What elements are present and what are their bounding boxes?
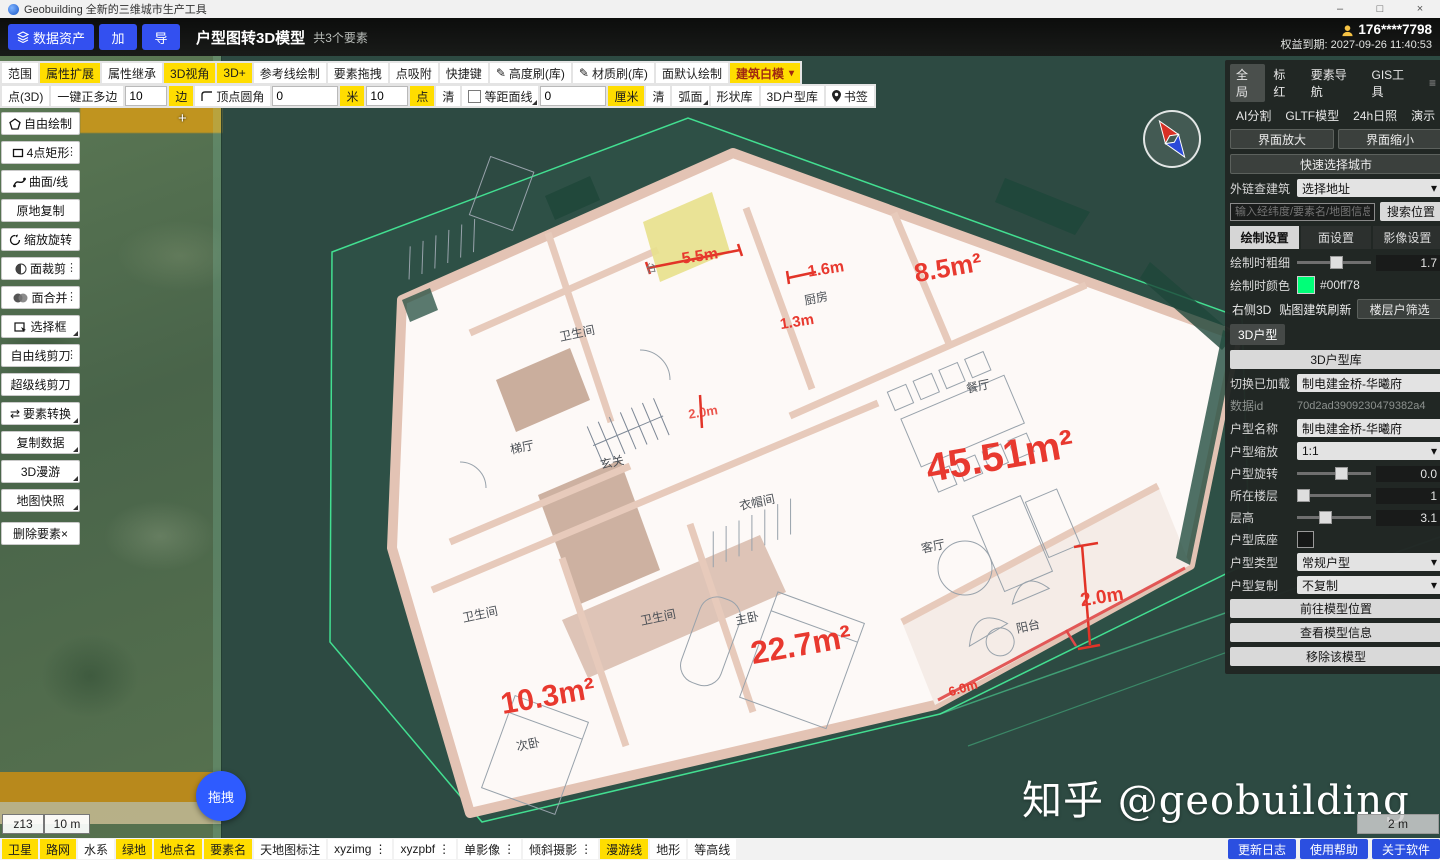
polygon-icon — [9, 118, 21, 130]
floor-height-slider[interactable] — [1297, 516, 1371, 519]
remove-model-button[interactable]: 移除该模型 — [1230, 647, 1440, 666]
data-id-label: 数据id — [1230, 397, 1292, 414]
floor-number-slider[interactable] — [1297, 494, 1371, 497]
toolbar-main: 范围 属性扩展 属性继承 3D视角 3D+ 参考线绘制 要素拖拽 点吸附 快捷键… — [0, 61, 802, 85]
house-rotate-value: 0.0 — [1376, 466, 1440, 482]
watermark: 知乎 @geobuilding — [1022, 768, 1410, 826]
add-button[interactable]: 加 — [99, 24, 137, 50]
floor-height-label: 层高 — [1230, 509, 1292, 526]
house-rotate-slider[interactable] — [1297, 472, 1371, 475]
tool-hotkeys[interactable]: 快捷键 — [440, 63, 488, 83]
tool-height-brush[interactable]: ✎高度刷(库) — [490, 63, 571, 83]
arc-surface-tool[interactable]: 弧面 — [672, 86, 708, 106]
layer-feature-names[interactable]: 要素名 — [204, 839, 252, 859]
right-3d-button[interactable]: 右侧3D — [1230, 300, 1273, 318]
floor-number-label: 所在楼层 — [1230, 487, 1292, 504]
goto-model-button[interactable]: 前往模型位置 — [1230, 599, 1440, 618]
chevron-down-icon: ▾ — [1431, 578, 1437, 592]
rectangle-icon — [12, 147, 24, 159]
clear-points-button[interactable]: 清 — [436, 86, 460, 106]
house-type-label: 户型类型 — [1230, 554, 1292, 571]
checkbox-icon — [468, 90, 481, 103]
corner-round-tool[interactable]: 顶点圆角 — [195, 86, 270, 106]
app-header: 数据资产 加 导 户型图转3D模型 共3个要素 176****7798 权益到期… — [0, 18, 1440, 56]
close-button[interactable]: × — [1400, 0, 1440, 18]
house-name-value[interactable]: 制电建金桥-华曦府 — [1297, 419, 1440, 437]
sides-unit[interactable]: 边 — [169, 86, 193, 106]
tool-regular-polygon[interactable]: 一键正多边 — [51, 86, 123, 106]
tool-feature-convert[interactable]: ⇄要素转换 — [1, 402, 80, 425]
tool-drag-feature[interactable]: 要素拖拽 — [328, 63, 388, 83]
search-input[interactable] — [1230, 203, 1375, 221]
compass[interactable] — [1143, 110, 1201, 168]
tab-sunlight[interactable]: 24h日照 — [1347, 105, 1403, 126]
layer-xyzpbf[interactable]: xyzpbf⋮ — [394, 839, 456, 859]
corner-icon — [201, 91, 213, 102]
tool-map-snapshot[interactable]: 地图快照 — [1, 489, 80, 512]
tool-refline[interactable]: 参考线绘制 — [254, 63, 326, 83]
tab-ai-split[interactable]: AI分割 — [1230, 105, 1277, 126]
tab-gis-tools[interactable]: GIS工具 — [1365, 64, 1421, 102]
app-window: + — [0, 0, 1440, 860]
equidistant-toggle[interactable]: 等距面线 — [462, 86, 538, 106]
map-scale-left: 10 m — [44, 814, 90, 834]
layer-water[interactable]: 水系 — [78, 839, 114, 859]
tool-attr-extend[interactable]: 属性扩展 — [40, 63, 100, 83]
more-icon: ⋮ — [66, 290, 77, 303]
map-scale-right: 2 m — [1357, 814, 1439, 834]
ext-building-label: 外链查建筑 — [1230, 180, 1292, 197]
chevron-down-icon: ▾ — [1431, 444, 1437, 458]
equidistant-input[interactable] — [540, 86, 606, 106]
tab-feature-nav[interactable]: 要素导航 — [1305, 64, 1364, 102]
tab-3d-house[interactable]: 3D户型 — [1230, 324, 1285, 345]
search-location-button[interactable]: 搜索位置 — [1380, 202, 1440, 221]
tool-copy-data[interactable]: 复制数据 — [1, 431, 80, 454]
stroke-width-label: 绘制时粗细 — [1230, 254, 1292, 271]
about-button[interactable]: 关于软件 — [1372, 839, 1440, 859]
tab-demo[interactable]: 演示 — [1405, 105, 1440, 126]
swap-arrows-icon: ⇄ — [10, 407, 20, 421]
floor-filter-button[interactable]: 楼层户筛选 — [1357, 299, 1440, 319]
layer-terrain[interactable]: 地形 — [650, 839, 686, 859]
tool-scale-rotate[interactable]: 缩放旋转 — [1, 228, 80, 251]
data-id-value: 70d2ad3909230479382a4 — [1297, 400, 1440, 412]
draw-color-label: 绘制时颜色 — [1230, 277, 1292, 294]
house-name-label: 户型名称 — [1230, 420, 1292, 437]
house-type-select[interactable]: 常规户型▾ — [1297, 553, 1440, 571]
pin-icon — [832, 90, 841, 102]
more-icon: ⋮ — [374, 842, 386, 856]
tool-4pt-rect[interactable]: 4点矩形⋮ — [1, 141, 80, 164]
stroke-width-value: 1.7 — [1376, 255, 1440, 271]
tool-copy-in-place[interactable]: 原地复制 — [1, 199, 80, 222]
building-mode-select[interactable]: 建筑白模▾ — [730, 63, 800, 83]
quick-city-button[interactable]: 快速选择城市 — [1230, 154, 1440, 174]
texture-refresh-button[interactable]: 贴图建筑刷新 — [1277, 300, 1353, 318]
layer-green[interactable]: 绿地 — [116, 839, 152, 859]
sides-input[interactable] — [125, 86, 167, 106]
house-library-button[interactable]: 3D户型库 — [761, 86, 824, 106]
tool-point3d[interactable]: 点(3D) — [2, 86, 49, 106]
model-info-button[interactable]: 查看模型信息 — [1230, 623, 1440, 642]
left-toolbar: 自由绘制 4点矩形⋮ 曲面/线 原地复制 缩放旋转 面裁剪⋮ 面合并⋮ 选择框 … — [1, 112, 80, 551]
export-button[interactable]: 导 — [142, 24, 180, 50]
switch-loaded-label: 切换已加载 — [1230, 375, 1292, 392]
license-expiry: 权益到期: 2027-09-26 11:40:53 — [1281, 39, 1432, 53]
layer-tianditu[interactable]: 天地图标注 — [254, 839, 326, 859]
tool-face-merge[interactable]: 面合并⋮ — [1, 286, 80, 309]
house-library-panel-button[interactable]: 3D户型库 — [1230, 350, 1440, 369]
user-icon — [1341, 24, 1354, 37]
stroke-width-slider[interactable] — [1297, 261, 1371, 264]
color-hex: #00ff78 — [1320, 278, 1360, 292]
app-logo-icon — [8, 4, 19, 15]
equidistant-unit[interactable]: 厘米 — [608, 86, 644, 106]
more-icon: ⋮ — [503, 842, 515, 856]
satellite-road — [0, 772, 222, 802]
help-button[interactable]: 使用帮助 — [1300, 839, 1368, 859]
chevron-down-icon: ▾ — [1431, 555, 1437, 569]
more-icon: ⋮ — [438, 842, 450, 856]
layer-xyzimg[interactable]: xyzimg⋮ — [328, 839, 392, 859]
glass-wall — [995, 178, 1090, 235]
layer-place-names[interactable]: 地点名 — [154, 839, 202, 859]
corner-unit[interactable]: 米 — [340, 86, 364, 106]
tool-face-clip[interactable]: 面裁剪⋮ — [1, 257, 80, 280]
tab-global[interactable]: 全局 — [1230, 64, 1265, 102]
house-rotate-label: 户型旋转 — [1230, 465, 1292, 482]
changelog-button[interactable]: 更新日志 — [1228, 839, 1296, 859]
panel-menu-icon[interactable]: ≡ — [1423, 74, 1440, 92]
pen-icon: ✎ — [579, 66, 589, 80]
drag-handle-button[interactable]: 拖拽 — [196, 771, 246, 821]
floor-number-value: 1 — [1376, 488, 1440, 504]
layers-icon — [17, 31, 29, 43]
user-account[interactable]: 176****7798 — [1281, 22, 1432, 39]
window-title: Geobuilding 全新的三维城市生产工具 — [24, 1, 207, 17]
tool-3d-plus[interactable]: 3D+ — [217, 63, 251, 83]
tool-3d-view[interactable]: 3D视角 — [164, 63, 215, 83]
chevron-down-icon: ▾ — [1431, 181, 1437, 195]
layer-roam-line[interactable]: 漫游线 — [600, 839, 648, 859]
tool-free-line-cut[interactable]: 自由线剪刀⋮ — [1, 344, 80, 367]
right-panel: 全局 标红 要素导航 GIS工具 ≡ AI分割 GLTF模型 24h日照 演示 … — [1225, 60, 1440, 674]
layer-oblique[interactable]: 倾斜摄影⋮ — [523, 839, 598, 859]
shape-library-button[interactable]: 形状库 — [711, 86, 759, 106]
tab-image-settings[interactable]: 影像设置 — [1373, 226, 1440, 249]
house-copy-label: 户型复制 — [1230, 577, 1292, 594]
maximize-button[interactable]: □ — [1360, 0, 1400, 18]
tool-default-draw[interactable]: 面默认绘制 — [656, 63, 728, 83]
select-box-icon — [14, 321, 27, 333]
window-titlebar: Geobuilding 全新的三维城市生产工具 – □ × — [0, 0, 1440, 19]
tool-super-line-cut[interactable]: 超级线剪刀 — [1, 373, 80, 396]
half-circle-icon — [15, 263, 27, 275]
pen-icon: ✎ — [496, 66, 506, 80]
house-base-checkbox[interactable] — [1297, 531, 1314, 548]
tool-snap[interactable]: 点吸附 — [390, 63, 438, 83]
rotate-icon — [9, 234, 21, 246]
satellite-road — [80, 107, 222, 133]
tool-attr-inherit[interactable]: 属性继承 — [102, 63, 162, 83]
compass-needle-icon — [1145, 112, 1199, 166]
ui-zoom-in-button[interactable]: 界面放大 — [1230, 129, 1334, 149]
bottom-layer-bar: 卫星 路网 水系 绿地 地点名 要素名 天地图标注 xyzimg⋮ xyzpbf… — [0, 838, 1440, 860]
feature-count: 共3个要素 — [313, 29, 368, 46]
curve-icon — [13, 176, 26, 188]
house-scale-label: 户型缩放 — [1230, 443, 1292, 460]
layer-single-image[interactable]: 单影像⋮ — [458, 839, 521, 859]
tool-select-box[interactable]: 选择框 — [1, 315, 80, 338]
floor-height-value: 3.1 — [1376, 510, 1440, 526]
tool-3d-roam[interactable]: 3D漫游 — [1, 460, 80, 483]
house-scale-select[interactable]: 1:1▾ — [1297, 442, 1440, 460]
tab-draw-settings[interactable]: 绘制设置 — [1230, 226, 1299, 249]
loaded-model-select[interactable]: 制电建金桥-华曦府 — [1297, 374, 1440, 392]
clear-equidistant-button[interactable]: 清 — [646, 86, 670, 106]
address-select[interactable]: 选择地址▾ — [1297, 179, 1440, 197]
tool-range[interactable]: 范围 — [2, 63, 38, 83]
data-asset-button[interactable]: 数据资产 — [8, 24, 94, 50]
tool-material-brush[interactable]: ✎材质刷(库) — [573, 63, 654, 83]
zoom-level-indicator: z13 — [2, 814, 44, 834]
map-crosshair-icon: + — [178, 110, 187, 127]
color-swatch[interactable] — [1297, 276, 1315, 294]
more-icon: ⋮ — [66, 145, 77, 158]
tab-mark-red[interactable]: 标红 — [1267, 64, 1302, 102]
layer-contour[interactable]: 等高线 — [688, 839, 736, 859]
map-seam — [213, 56, 222, 838]
points-input[interactable] — [366, 86, 408, 106]
delete-feature-button[interactable]: 删除要素× — [1, 522, 80, 545]
bookmark-button[interactable]: 书签 — [826, 86, 874, 106]
layer-satellite[interactable]: 卫星 — [2, 839, 38, 859]
chevron-down-icon: ▾ — [789, 68, 794, 79]
ui-zoom-out-button[interactable]: 界面缩小 — [1338, 129, 1440, 149]
merge-circles-icon — [13, 292, 28, 304]
toolbar-draw: 点(3D) 一键正多边 边 顶点圆角 米 点 清 等距面线 厘米 清 弧面 形状… — [0, 84, 876, 108]
minimize-button[interactable]: – — [1320, 0, 1360, 18]
page-title: 户型图转3D模型 — [196, 27, 305, 48]
more-icon: ⋮ — [580, 842, 592, 856]
more-icon: ⋮ — [66, 348, 77, 361]
tool-curve-line[interactable]: 曲面/线 — [1, 170, 80, 193]
tool-free-draw[interactable]: 自由绘制 — [1, 112, 80, 135]
tab-gltf[interactable]: GLTF模型 — [1279, 105, 1345, 126]
layer-roads[interactable]: 路网 — [40, 839, 76, 859]
more-icon: ⋮ — [66, 261, 77, 274]
tab-face-settings[interactable]: 面设置 — [1301, 226, 1370, 249]
points-unit[interactable]: 点 — [410, 86, 434, 106]
house-base-label: 户型底座 — [1230, 531, 1292, 548]
house-copy-select[interactable]: 不复制▾ — [1297, 576, 1440, 594]
corner-radius-input[interactable] — [272, 86, 338, 106]
